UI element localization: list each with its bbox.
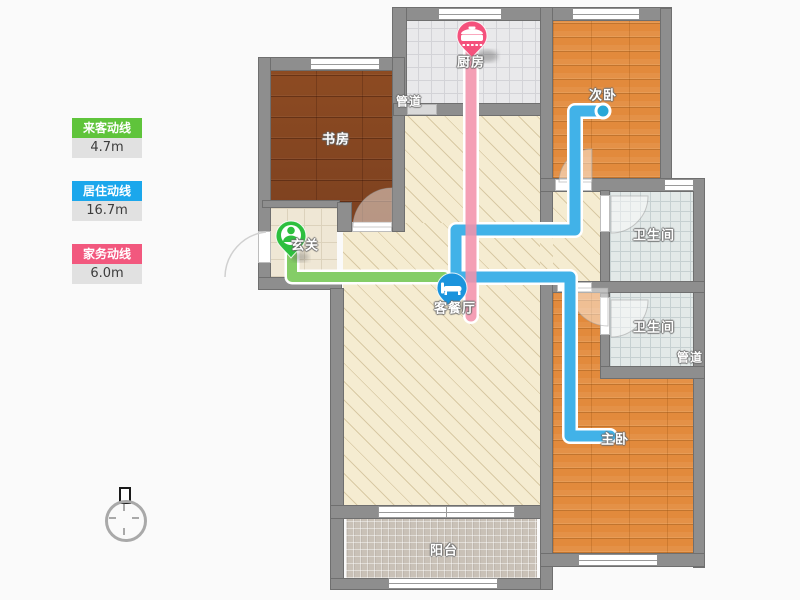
master-door xyxy=(557,282,592,292)
hallway-floor xyxy=(553,190,600,282)
balcony-sliding-door xyxy=(378,506,515,518)
compass-icon xyxy=(103,487,147,539)
bathroom1-door xyxy=(600,195,610,232)
master-bedroom-label: 主卧 xyxy=(601,429,629,448)
kitchen-label: 厨房 xyxy=(457,52,485,71)
living-floor-main xyxy=(343,223,553,510)
wall xyxy=(660,8,672,190)
second-bedroom-label: 次卧 xyxy=(589,85,617,104)
wall xyxy=(330,288,344,590)
wall xyxy=(540,281,553,590)
entry-door xyxy=(258,231,271,263)
legend-resident-title: 居住动线 xyxy=(72,181,142,201)
kitchen-window xyxy=(438,8,502,20)
legend-item-visitor[interactable]: 来客动线 4.7m xyxy=(72,118,142,158)
master-window xyxy=(578,554,658,566)
bathroom2-door xyxy=(600,297,610,335)
living-dining-label: 客餐厅 xyxy=(434,298,476,317)
wall xyxy=(337,202,352,232)
bathroom2-label: 卫生间 xyxy=(633,317,675,336)
duct-top-label: 管道 xyxy=(396,93,422,110)
legend-housework-value: 6.0m xyxy=(72,264,142,284)
bedroom2-door xyxy=(555,179,592,191)
bathroom1-label: 卫生间 xyxy=(633,225,675,244)
legend-item-housework[interactable]: 家务动线 6.0m xyxy=(72,244,142,284)
legend-item-resident[interactable]: 居住动线 16.7m xyxy=(72,181,142,221)
balcony-window xyxy=(388,578,498,589)
wall xyxy=(540,7,553,225)
wall xyxy=(392,57,405,232)
entry-label: 玄关 xyxy=(291,235,319,254)
legend-visitor-value: 4.7m xyxy=(72,138,142,158)
living-floor-upper xyxy=(404,113,540,223)
compass-ring xyxy=(105,500,147,542)
duct-right-label: 管道 xyxy=(677,349,703,366)
bathroom1-window xyxy=(664,179,694,191)
study-window xyxy=(310,58,380,70)
wall xyxy=(262,200,340,208)
hallway-passage-floor xyxy=(540,225,553,281)
wall xyxy=(600,366,705,379)
legend-housework-title: 家务动线 xyxy=(72,244,142,264)
legend-resident-value: 16.7m xyxy=(72,201,142,221)
study-door xyxy=(352,222,392,232)
legend-visitor-title: 来客动线 xyxy=(72,118,142,138)
balcony-label: 阳台 xyxy=(430,540,458,559)
study-label: 书房 xyxy=(322,129,350,148)
bedroom2-window xyxy=(572,8,640,20)
